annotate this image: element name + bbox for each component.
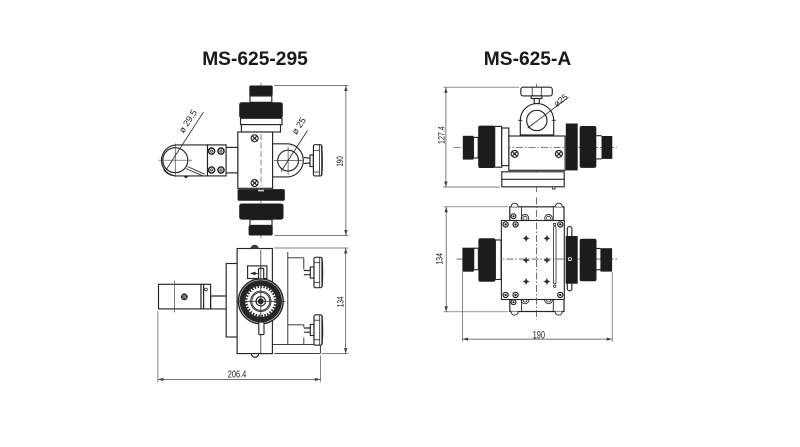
svg-text:190: 190	[533, 330, 545, 342]
svg-text:206.4: 206.4	[228, 370, 247, 381]
svg-text:134: 134	[335, 296, 345, 307]
svg-text:ø25: ø25	[552, 92, 570, 109]
svg-text:127.4: 127.4	[436, 126, 446, 144]
svg-text:ø 29.5: ø 29.5	[177, 108, 199, 135]
svg-text:ø 25: ø 25	[290, 116, 308, 137]
svg-text:190: 190	[335, 156, 345, 166]
svg-text:MS-625-295: MS-625-295	[202, 49, 308, 70]
svg-text:134: 134	[434, 253, 444, 265]
svg-text:MS-625-A: MS-625-A	[484, 49, 572, 70]
